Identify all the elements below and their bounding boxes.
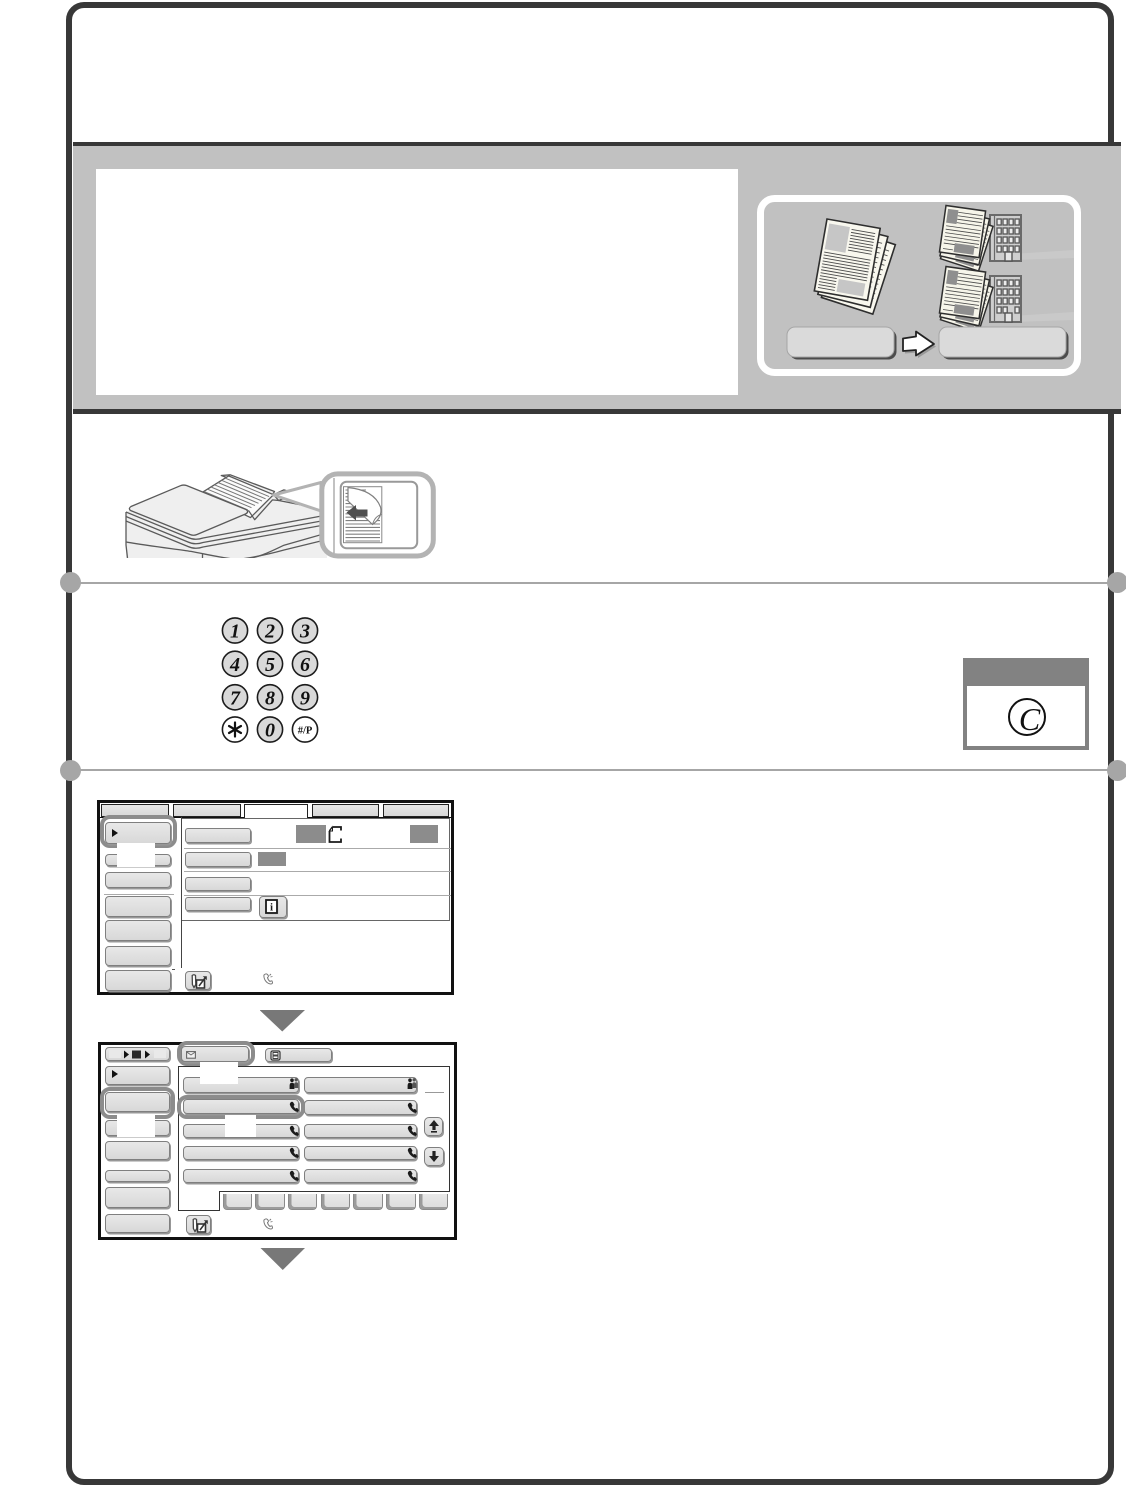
svg-text:3: 3 — [299, 621, 310, 643]
svg-text:6: 6 — [300, 654, 310, 676]
svg-text:4: 4 — [229, 654, 240, 676]
svg-text:0: 0 — [265, 720, 275, 742]
svg-text:i: i — [270, 901, 273, 913]
svg-text:5: 5 — [265, 654, 275, 676]
svg-text:7: 7 — [230, 687, 241, 709]
svg-text:2: 2 — [264, 621, 275, 643]
svg-text:#/P: #/P — [298, 726, 313, 737]
svg-text:1: 1 — [230, 621, 240, 643]
svg-text:9: 9 — [300, 687, 310, 709]
svg-text:8: 8 — [265, 687, 275, 709]
